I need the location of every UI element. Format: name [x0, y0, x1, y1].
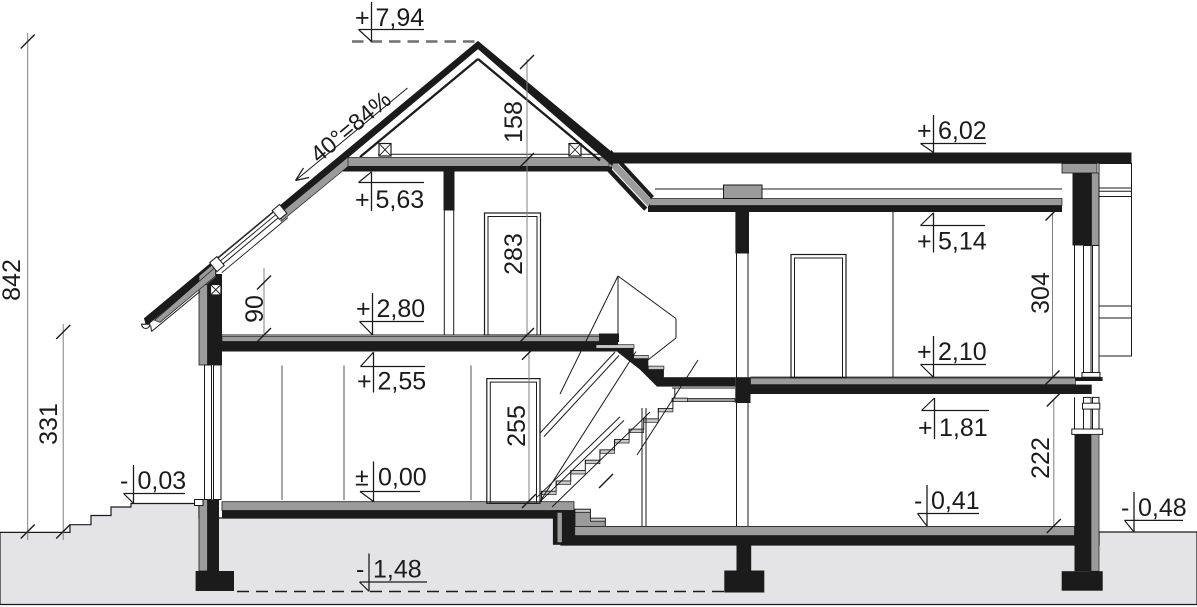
svg-text:±: ± [355, 464, 369, 492]
svg-text:+: + [917, 338, 932, 366]
svg-text:5,63: 5,63 [376, 186, 425, 214]
svg-text:1,81: 1,81 [939, 414, 988, 442]
svg-text:304: 304 [1027, 272, 1055, 314]
svg-text:+: + [355, 4, 370, 32]
svg-text:-: - [120, 467, 128, 495]
svg-text:+: + [356, 295, 371, 323]
svg-text:2,80: 2,80 [377, 295, 426, 323]
svg-text:2,55: 2,55 [378, 368, 427, 396]
svg-text:0,00: 0,00 [378, 464, 427, 492]
svg-text:0,41: 0,41 [931, 487, 980, 515]
svg-text:5,14: 5,14 [938, 228, 987, 256]
svg-text:-: - [356, 556, 364, 584]
svg-text:283: 283 [500, 233, 528, 275]
svg-text:2,10: 2,10 [938, 338, 987, 366]
svg-text:-: - [914, 487, 922, 515]
svg-text:1,48: 1,48 [373, 556, 422, 584]
svg-text:222: 222 [1027, 437, 1055, 479]
svg-text:331: 331 [35, 403, 63, 445]
svg-text:-: - [1121, 494, 1129, 522]
svg-text:+: + [917, 117, 932, 145]
svg-text:0,48: 0,48 [1138, 494, 1187, 522]
svg-text:+: + [917, 228, 932, 256]
svg-text:842: 842 [0, 259, 26, 301]
svg-text:+: + [355, 186, 370, 214]
svg-text:7,94: 7,94 [376, 4, 425, 32]
svg-text:90: 90 [241, 295, 269, 323]
svg-text:+: + [918, 414, 933, 442]
svg-text:6,02: 6,02 [938, 117, 987, 145]
svg-text:255: 255 [503, 405, 531, 447]
svg-text:0,03: 0,03 [138, 467, 187, 495]
svg-text:158: 158 [500, 101, 528, 143]
svg-text:+: + [357, 368, 372, 396]
